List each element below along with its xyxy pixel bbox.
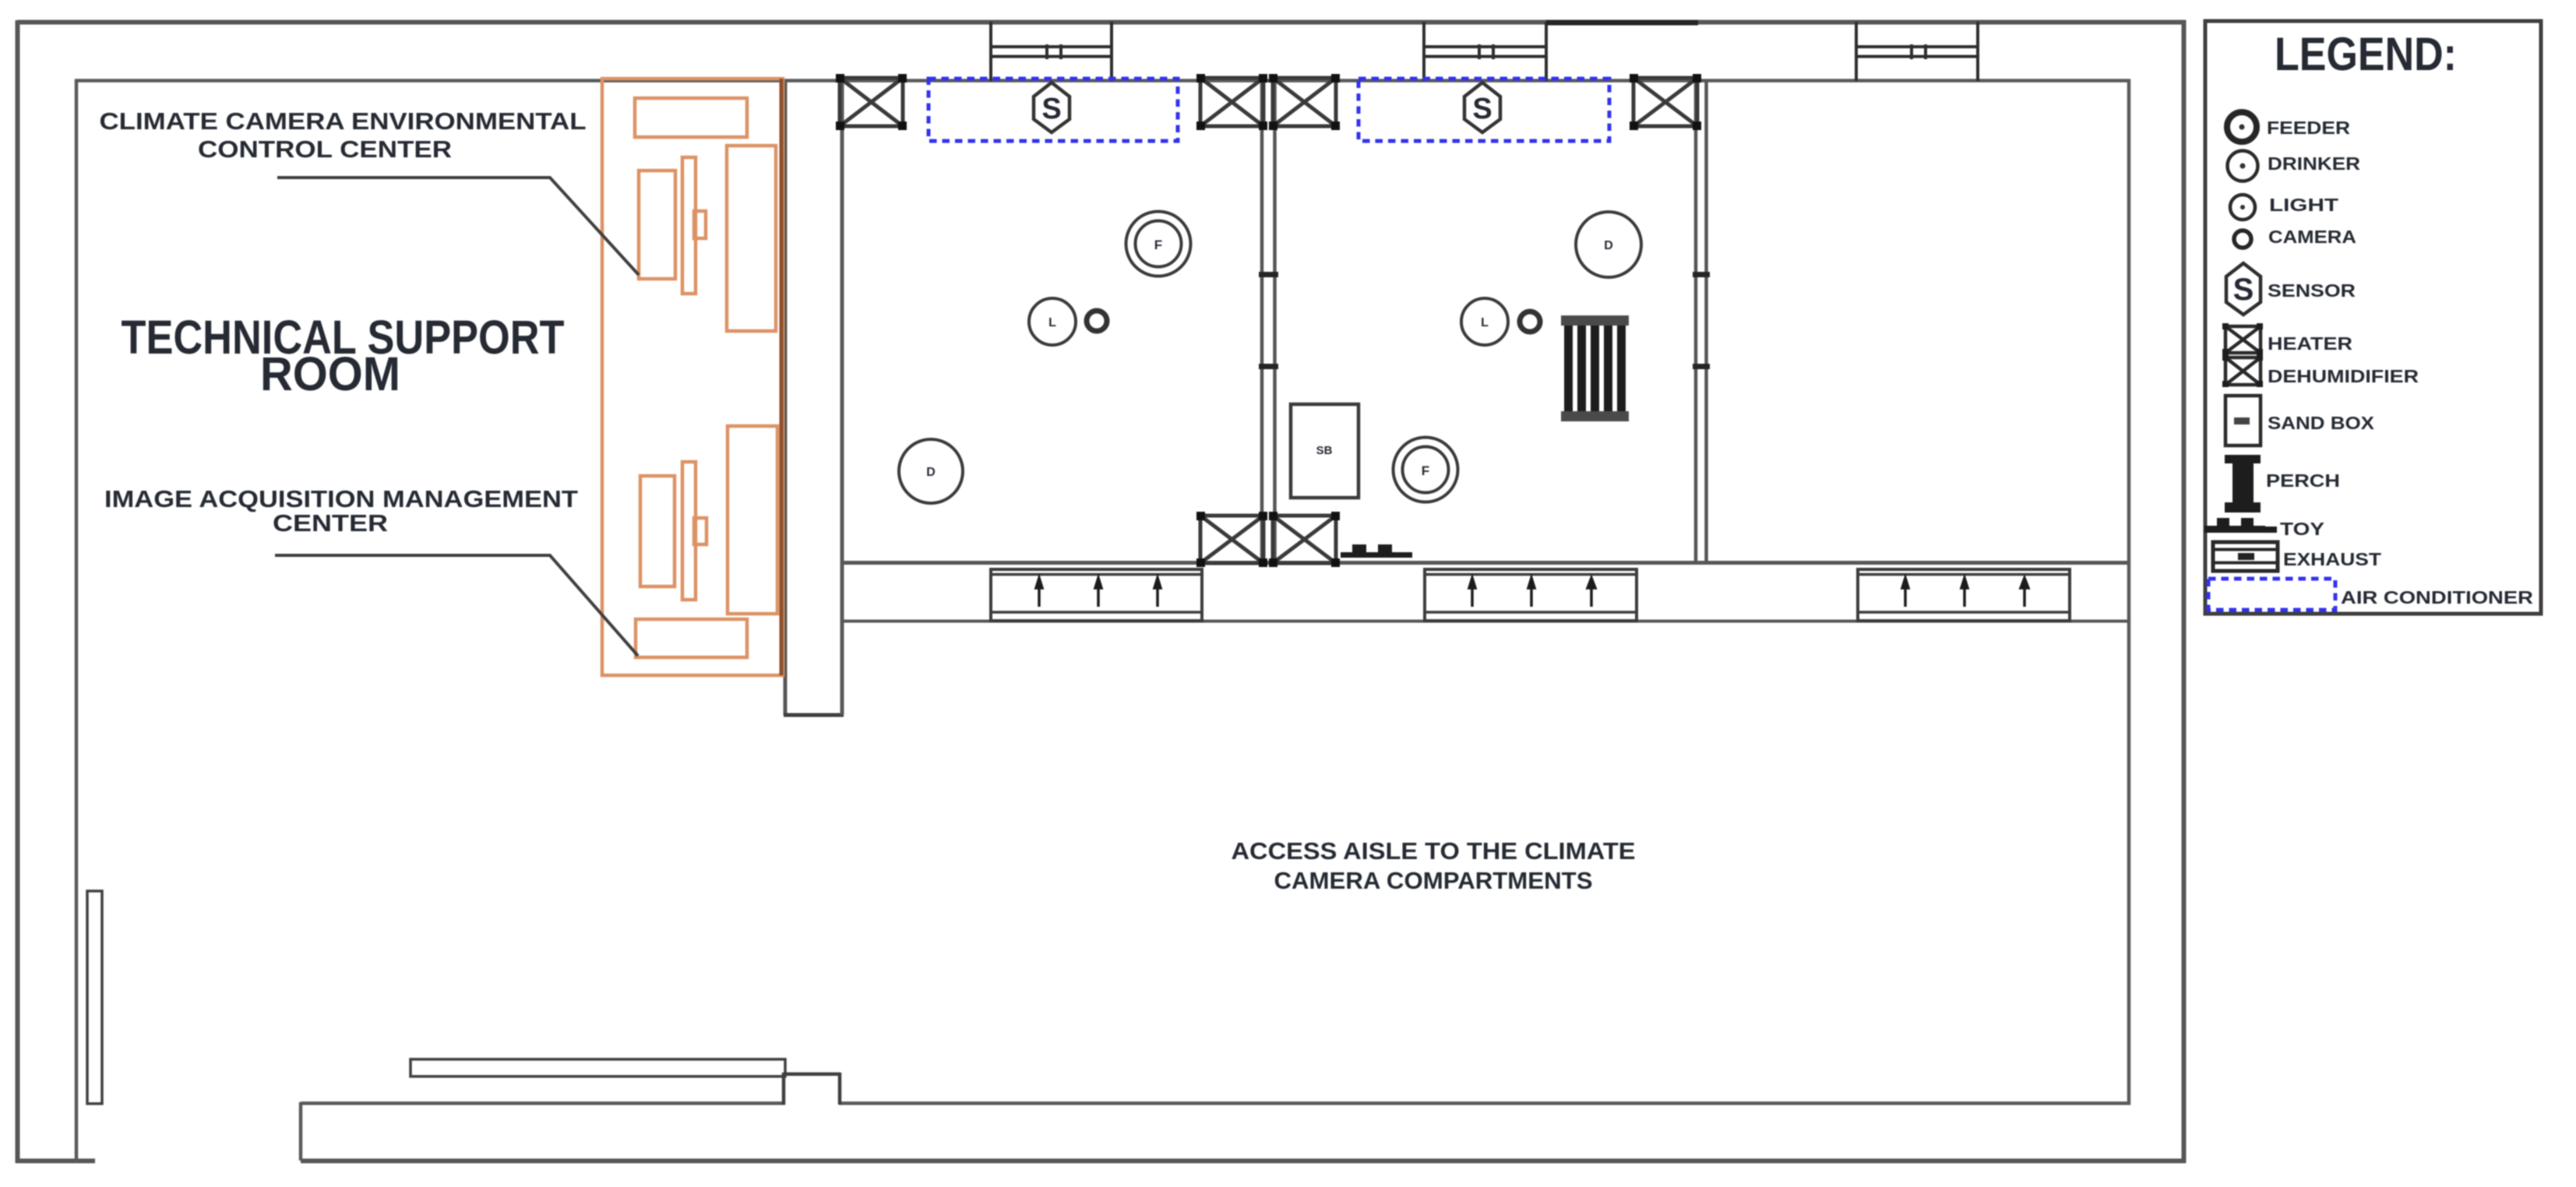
svg-text:ACCESS AISLE TO THE CLIMATE: ACCESS AISLE TO THE CLIMATE: [1232, 837, 1636, 865]
svg-text:L: L: [1481, 316, 1489, 329]
svg-text:S: S: [1472, 93, 1492, 125]
svg-text:CENTER: CENTER: [273, 509, 388, 537]
svg-text:S: S: [2233, 273, 2254, 307]
svg-text:D: D: [1604, 239, 1613, 252]
svg-text:CONTROL CENTER: CONTROL CENTER: [198, 136, 452, 163]
svg-text:IMAGE ACQUISITION MANAGEMENT: IMAGE ACQUISITION MANAGEMENT: [104, 485, 578, 512]
svg-text:LIGHT: LIGHT: [2269, 195, 2338, 215]
svg-text:CAMERA: CAMERA: [2268, 227, 2356, 247]
svg-text:DEHUMIDIFIER: DEHUMIDIFIER: [2268, 366, 2419, 386]
svg-text:L: L: [1048, 316, 1056, 329]
svg-text:LEGEND:: LEGEND:: [2275, 28, 2457, 80]
svg-text:SAND BOX: SAND BOX: [2268, 413, 2375, 433]
svg-text:DRINKER: DRINKER: [2268, 153, 2360, 174]
svg-text:CAMERA COMPARTMENTS: CAMERA COMPARTMENTS: [1274, 867, 1593, 894]
svg-text:PERCH: PERCH: [2266, 470, 2340, 491]
svg-text:ROOM: ROOM: [260, 347, 400, 400]
svg-text:D: D: [926, 466, 936, 479]
svg-text:F: F: [1422, 463, 1429, 478]
svg-text:TOY: TOY: [2280, 519, 2324, 539]
svg-text:HEATER: HEATER: [2268, 333, 2352, 354]
svg-text:EXHAUST: EXHAUST: [2283, 549, 2381, 569]
svg-text:S: S: [1041, 93, 1061, 125]
svg-text:SB: SB: [1316, 444, 1333, 457]
svg-text:AIR CONDITIONER: AIR CONDITIONER: [2341, 587, 2533, 608]
svg-text:SENSOR: SENSOR: [2268, 280, 2356, 301]
svg-text:F: F: [1154, 238, 1162, 252]
svg-text:FEEDER: FEEDER: [2267, 118, 2350, 138]
svg-text:CLIMATE CAMERA ENVIRONMENTAL: CLIMATE CAMERA ENVIRONMENTAL: [100, 107, 587, 135]
